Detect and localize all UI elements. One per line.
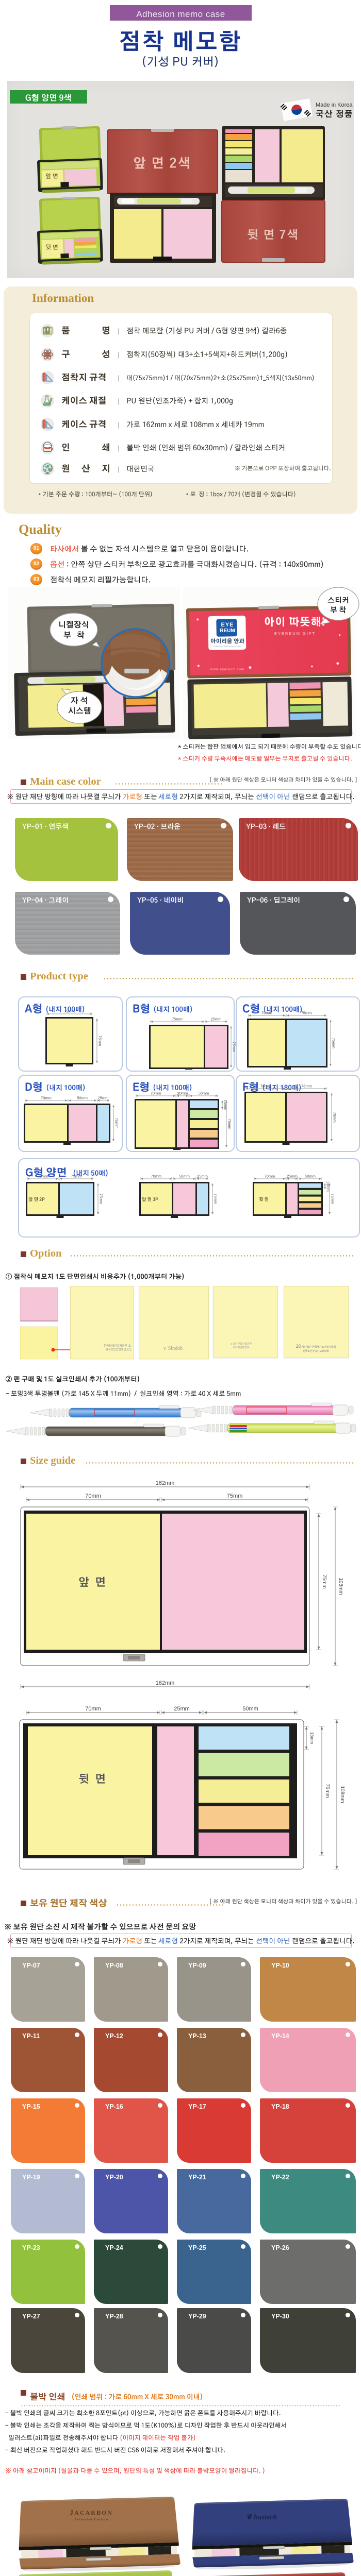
svg-text:78mm: 78mm xyxy=(301,1084,312,1089)
svg-text:75mm: 75mm xyxy=(331,1194,335,1205)
svg-text:75mm: 75mm xyxy=(172,1017,183,1022)
svg-text:162mm: 162mm xyxy=(156,1480,175,1486)
svg-text:25mm: 25mm xyxy=(174,1706,190,1712)
svg-text:75mm: 75mm xyxy=(301,1011,312,1015)
svg-text:78mm: 78mm xyxy=(260,1084,271,1089)
svg-text:70mm: 70mm xyxy=(85,1706,101,1712)
svg-text:70mm: 70mm xyxy=(38,1174,48,1179)
svg-text:25mm: 25mm xyxy=(211,1017,222,1022)
svg-text:70mm: 70mm xyxy=(85,1493,101,1499)
svg-text:75mm: 75mm xyxy=(227,1118,232,1129)
svg-text:75mm: 75mm xyxy=(227,1493,243,1499)
svg-text:70mm: 70mm xyxy=(261,1011,272,1015)
svg-text:75mm: 75mm xyxy=(321,1574,327,1589)
svg-text:75mm: 75mm xyxy=(64,1009,75,1014)
svg-text:78mm: 78mm xyxy=(333,1112,337,1123)
svg-text:50mm: 50mm xyxy=(199,1091,209,1096)
svg-text:70mm: 70mm xyxy=(265,1174,275,1179)
svg-text:75mm: 75mm xyxy=(324,1784,330,1798)
svg-text:70mm: 70mm xyxy=(151,1174,162,1179)
svg-text:70mm: 70mm xyxy=(41,1096,52,1100)
svg-text:50mm: 50mm xyxy=(242,1706,258,1712)
svg-text:25mm: 25mm xyxy=(287,1174,298,1179)
svg-text:13mm: 13mm xyxy=(309,1732,315,1744)
svg-text:25mm: 25mm xyxy=(98,1096,109,1100)
svg-text:25mm: 25mm xyxy=(197,1174,208,1179)
svg-text:75mm: 75mm xyxy=(114,1118,119,1129)
svg-text:75mm: 75mm xyxy=(98,1036,103,1046)
svg-text:70mm: 70mm xyxy=(151,1091,161,1096)
svg-text:75mm: 75mm xyxy=(71,1174,82,1179)
svg-text:50mm: 50mm xyxy=(305,1174,316,1179)
svg-text:50mm: 50mm xyxy=(179,1174,190,1179)
svg-text:108mm: 108mm xyxy=(338,1578,343,1595)
svg-text:13mm: 13mm xyxy=(223,1099,228,1110)
svg-text:108mm: 108mm xyxy=(339,1786,345,1803)
svg-text:50mm: 50mm xyxy=(77,1096,88,1100)
svg-text:75mm: 75mm xyxy=(232,1042,237,1053)
svg-text:75mm: 75mm xyxy=(332,1038,336,1048)
svg-text:75mm: 75mm xyxy=(99,1194,104,1205)
svg-text:75mm: 75mm xyxy=(214,1194,218,1205)
svg-text:162mm: 162mm xyxy=(156,1680,175,1686)
svg-text:20mm: 20mm xyxy=(177,1091,188,1096)
